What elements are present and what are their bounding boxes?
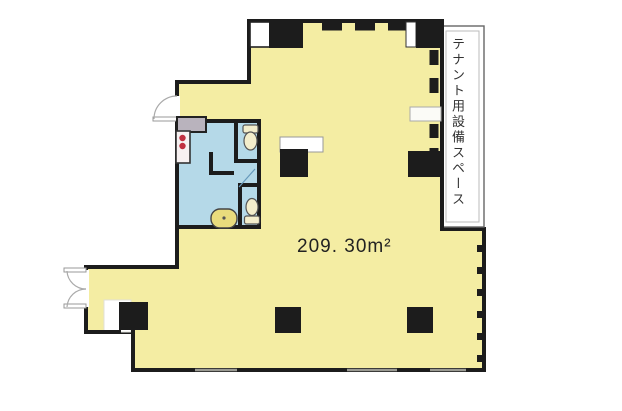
equipment-space-label: テナント用設備スペース (448, 37, 467, 217)
bottom-left-wall-segment (84, 330, 121, 334)
toilet-icon (245, 199, 260, 225)
pillar-right-wall (408, 151, 441, 177)
burner-icon (179, 135, 185, 141)
duct-box-top-right (406, 22, 416, 47)
bottom-left-wall-vertical (131, 330, 135, 372)
door-leaf-upper (153, 117, 177, 121)
door-arc-upper (154, 96, 177, 119)
pillar-top-right (416, 19, 443, 48)
pillar-top-left (269, 19, 303, 48)
floor-plan-canvas: 209. 30m² テナント用設備スペース (0, 0, 622, 411)
burner-icon (179, 143, 185, 149)
floor-plan-drawing (0, 0, 622, 411)
service-hatch-right (410, 107, 441, 121)
duct-box-top-left (250, 22, 270, 47)
door-opening-upper-left (174, 96, 180, 118)
counter-top (177, 117, 206, 132)
pillar-center (280, 149, 308, 177)
pillar-bottom-right (407, 307, 433, 333)
sink-icon (211, 209, 237, 228)
toilet-icon (243, 125, 258, 150)
pillar-bottom-center (275, 307, 301, 333)
pillar-bottom-left (119, 302, 148, 330)
floor-area-label: 209. 30m² (297, 236, 392, 258)
